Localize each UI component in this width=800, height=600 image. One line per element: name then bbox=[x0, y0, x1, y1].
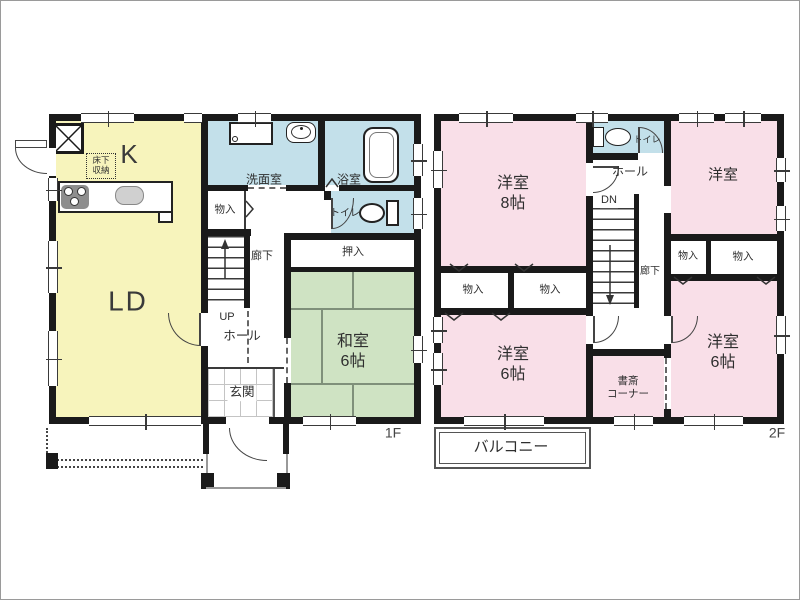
wall bbox=[664, 409, 671, 417]
wall bbox=[664, 344, 671, 358]
entrance-divider bbox=[273, 369, 275, 417]
door-arc bbox=[15, 148, 47, 174]
wall bbox=[586, 196, 593, 316]
window bbox=[614, 416, 653, 426]
terrace-post bbox=[46, 453, 58, 469]
toilet-label: トイレ bbox=[330, 208, 360, 221]
wall bbox=[284, 383, 291, 417]
window bbox=[459, 113, 513, 123]
up-arrow-icon bbox=[219, 239, 231, 281]
floor-1-label: 1F bbox=[385, 424, 401, 442]
window bbox=[679, 113, 714, 123]
closet-door-icon bbox=[449, 263, 469, 272]
window bbox=[433, 353, 443, 385]
japanese-room-label: 和室 6帖 bbox=[337, 332, 369, 372]
toilet-tank-icon bbox=[593, 127, 604, 147]
bedroom-ne-label: 洋室 bbox=[708, 167, 738, 186]
window bbox=[303, 416, 356, 426]
window bbox=[725, 113, 761, 123]
wall bbox=[706, 241, 711, 274]
closet-label: 押入 bbox=[342, 246, 364, 260]
kitchen-sink-icon bbox=[115, 186, 144, 205]
window bbox=[48, 241, 58, 293]
toilet-icon bbox=[605, 128, 631, 146]
window bbox=[776, 206, 786, 231]
kitchen-door-leaf bbox=[15, 140, 47, 148]
wall bbox=[201, 121, 208, 313]
bathroom-label: 浴室 bbox=[337, 173, 361, 188]
window bbox=[433, 151, 443, 188]
crossed-box-icon bbox=[53, 123, 84, 154]
storage-label: 物入 bbox=[215, 203, 236, 216]
wall bbox=[284, 233, 414, 240]
hall-label: ホール bbox=[612, 165, 648, 180]
window bbox=[184, 113, 202, 123]
tatami-line bbox=[321, 309, 323, 384]
door-opening bbox=[664, 186, 671, 213]
porch-edge bbox=[286, 454, 288, 474]
window bbox=[433, 317, 443, 343]
terrace-edge bbox=[46, 466, 203, 468]
wall bbox=[664, 213, 671, 316]
door-arc bbox=[594, 316, 619, 343]
kitchen-door-opening bbox=[49, 148, 56, 176]
door-leaf bbox=[671, 316, 673, 343]
window bbox=[48, 331, 58, 386]
living-dining-label: LD bbox=[108, 284, 148, 319]
bedroom-6-sw-label: 洋室 6帖 bbox=[497, 345, 529, 385]
bedroom-6-se-label: 洋室 6帖 bbox=[707, 333, 739, 373]
closet-door-icon bbox=[673, 276, 693, 285]
wall bbox=[671, 234, 777, 241]
stove-burner-icon bbox=[70, 197, 79, 206]
study-corner-boundary bbox=[665, 358, 667, 409]
floor-2-label: 2F bbox=[769, 424, 785, 442]
tatami-line bbox=[352, 384, 354, 417]
floor-plan-image: 床下 収納 bbox=[0, 0, 800, 600]
terrace-edge bbox=[46, 459, 203, 461]
stairs-down-label: DN bbox=[600, 194, 618, 208]
vanity-faucet-icon bbox=[300, 127, 303, 130]
toilet-tank-icon bbox=[386, 200, 399, 226]
stair-wall bbox=[634, 194, 639, 308]
window bbox=[776, 316, 786, 354]
sliding-door bbox=[286, 338, 288, 383]
wall bbox=[201, 346, 208, 417]
tatami-line bbox=[352, 272, 354, 309]
closet-door-icon bbox=[756, 276, 776, 285]
wall bbox=[508, 273, 514, 308]
porch-wall bbox=[283, 424, 289, 454]
closet-door-icon bbox=[444, 312, 464, 321]
storage-label: 物入 bbox=[733, 250, 754, 263]
stair-wall bbox=[244, 236, 250, 308]
corridor-label: 廊下 bbox=[640, 266, 660, 279]
window bbox=[684, 416, 743, 426]
toilet-icon bbox=[359, 203, 385, 223]
closet-door-icon bbox=[514, 263, 534, 272]
wall bbox=[284, 240, 291, 272]
storage-label: 物入 bbox=[540, 283, 561, 296]
front-door-opening bbox=[226, 417, 269, 424]
underfloor-storage-box: 床下 収納 bbox=[86, 153, 116, 179]
wall bbox=[286, 185, 325, 191]
kitchen-label: K bbox=[120, 138, 137, 171]
bathtub-inner-icon bbox=[369, 132, 394, 178]
door-leaf bbox=[199, 313, 201, 346]
down-arrow-icon bbox=[604, 243, 616, 305]
underfloor-storage-label: 床下 収納 bbox=[92, 156, 109, 176]
window bbox=[48, 178, 58, 201]
closet-door-icon bbox=[491, 312, 511, 321]
bedroom-8-label: 洋室 8帖 bbox=[497, 174, 529, 214]
door-leaf bbox=[593, 316, 595, 343]
wall bbox=[591, 153, 638, 160]
entrance-label: 玄関 bbox=[227, 385, 256, 401]
kitchen-counter-return bbox=[158, 211, 173, 223]
window bbox=[413, 198, 423, 229]
wall bbox=[318, 121, 325, 185]
corridor-label: 廊下 bbox=[251, 250, 273, 264]
window bbox=[413, 336, 423, 363]
hall-label: ホール bbox=[223, 329, 261, 345]
wall bbox=[208, 229, 251, 236]
washroom-label: 洗面室 bbox=[246, 173, 282, 188]
window bbox=[576, 113, 608, 123]
window bbox=[776, 158, 786, 182]
stove-burner-icon bbox=[64, 187, 73, 196]
front-door-arc bbox=[229, 428, 267, 461]
toilet-label: トイレ bbox=[633, 134, 660, 145]
storage-door-icon bbox=[245, 200, 254, 218]
window bbox=[413, 144, 423, 176]
storage-label: 物入 bbox=[678, 251, 698, 264]
porch-wall bbox=[203, 424, 209, 454]
wall bbox=[208, 185, 248, 191]
window bbox=[89, 416, 201, 426]
window bbox=[464, 416, 544, 426]
porch-edge bbox=[206, 454, 208, 474]
stairs-up-label: UP bbox=[219, 311, 234, 325]
wall bbox=[593, 349, 664, 356]
stove-burner-icon bbox=[77, 187, 86, 196]
wall bbox=[324, 191, 331, 200]
wall bbox=[291, 267, 414, 272]
porch-edge bbox=[206, 487, 286, 489]
balcony-label: バルコニー bbox=[474, 439, 549, 458]
window bbox=[238, 113, 271, 123]
wall bbox=[586, 344, 593, 417]
window bbox=[81, 113, 134, 123]
storage-label: 物入 bbox=[463, 283, 484, 296]
wall bbox=[284, 272, 291, 338]
study-corner-label: 書斎 コーナー bbox=[607, 375, 649, 401]
wall bbox=[664, 121, 671, 186]
washing-machine-dial-icon bbox=[232, 136, 238, 142]
